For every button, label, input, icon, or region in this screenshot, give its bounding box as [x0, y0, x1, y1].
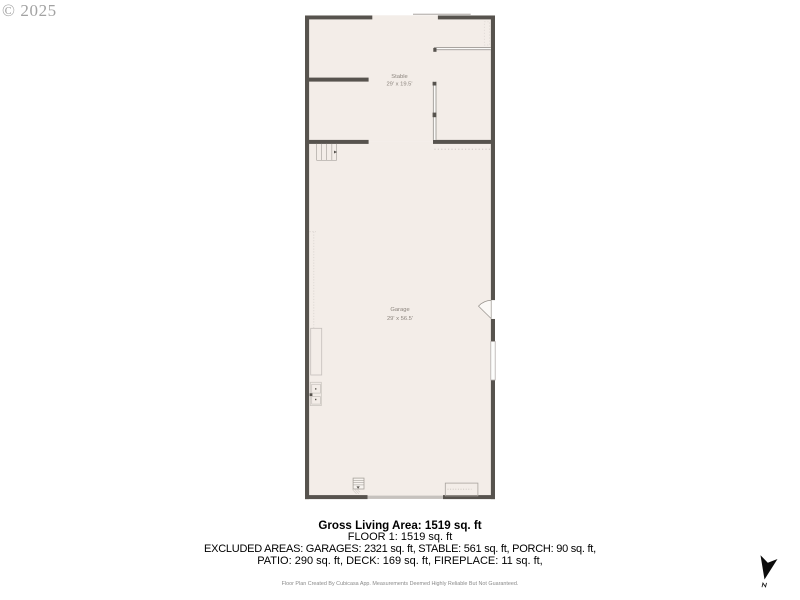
- svg-text:Stable: Stable: [391, 74, 407, 80]
- svg-text:29' x 56.5': 29' x 56.5': [387, 316, 413, 322]
- svg-text:Garage: Garage: [390, 307, 409, 313]
- svg-text:29' x 19.5': 29' x 19.5': [386, 81, 412, 87]
